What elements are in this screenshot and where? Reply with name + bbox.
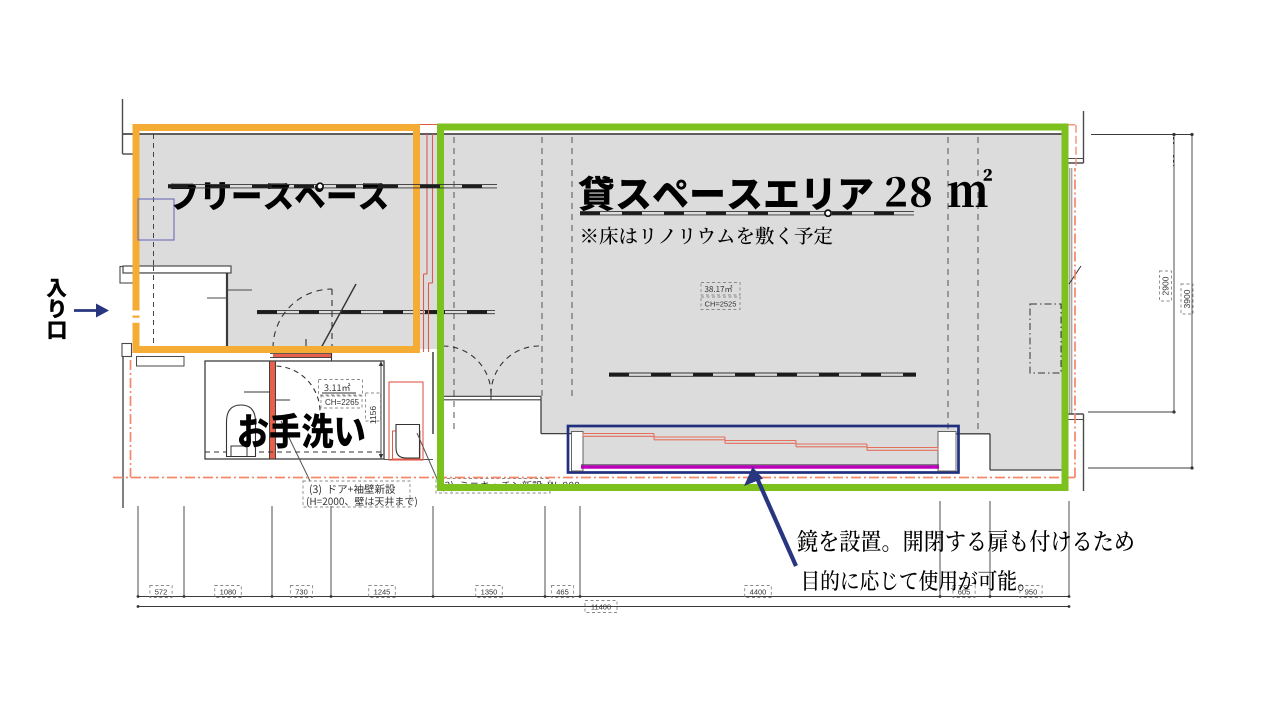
svg-text:1156: 1156 bbox=[368, 406, 378, 425]
svg-text:730: 730 bbox=[295, 588, 308, 597]
svg-text:1350: 1350 bbox=[481, 588, 498, 597]
svg-text:465: 465 bbox=[556, 588, 569, 597]
svg-text:4400: 4400 bbox=[750, 588, 767, 597]
svg-text:1245: 1245 bbox=[374, 588, 391, 597]
svg-text:CH=2525: CH=2525 bbox=[705, 300, 737, 309]
svg-text:3900: 3900 bbox=[1182, 289, 1192, 308]
svg-text:572: 572 bbox=[155, 588, 168, 597]
svg-text:11400: 11400 bbox=[591, 603, 611, 612]
svg-text:2900: 2900 bbox=[1161, 276, 1171, 295]
svg-text:1080: 1080 bbox=[220, 588, 237, 597]
svg-text:CH=2265: CH=2265 bbox=[325, 398, 360, 407]
svg-text:950: 950 bbox=[1025, 588, 1038, 597]
